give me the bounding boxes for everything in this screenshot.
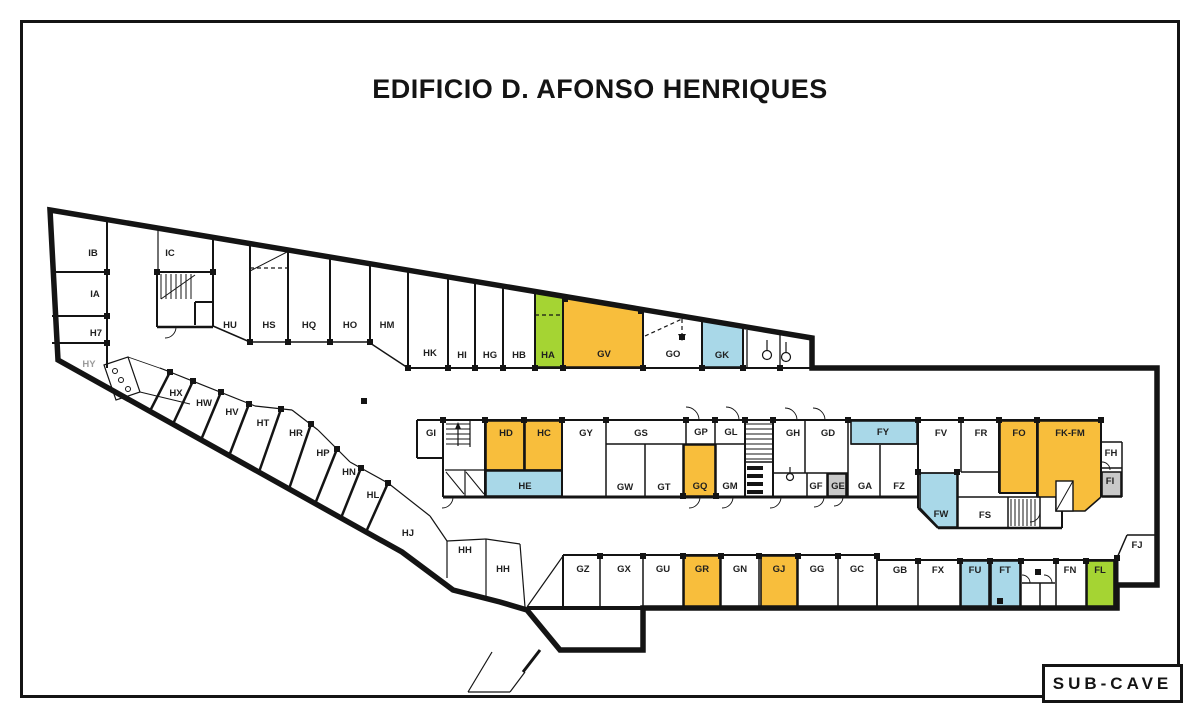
page-border	[20, 20, 1180, 698]
floor-label: SUB-CAVE	[1053, 674, 1173, 694]
plan-title: EDIFICIO D. AFONSO HENRIQUES	[0, 74, 1200, 105]
floor-label-box: SUB-CAVE	[1042, 664, 1183, 703]
